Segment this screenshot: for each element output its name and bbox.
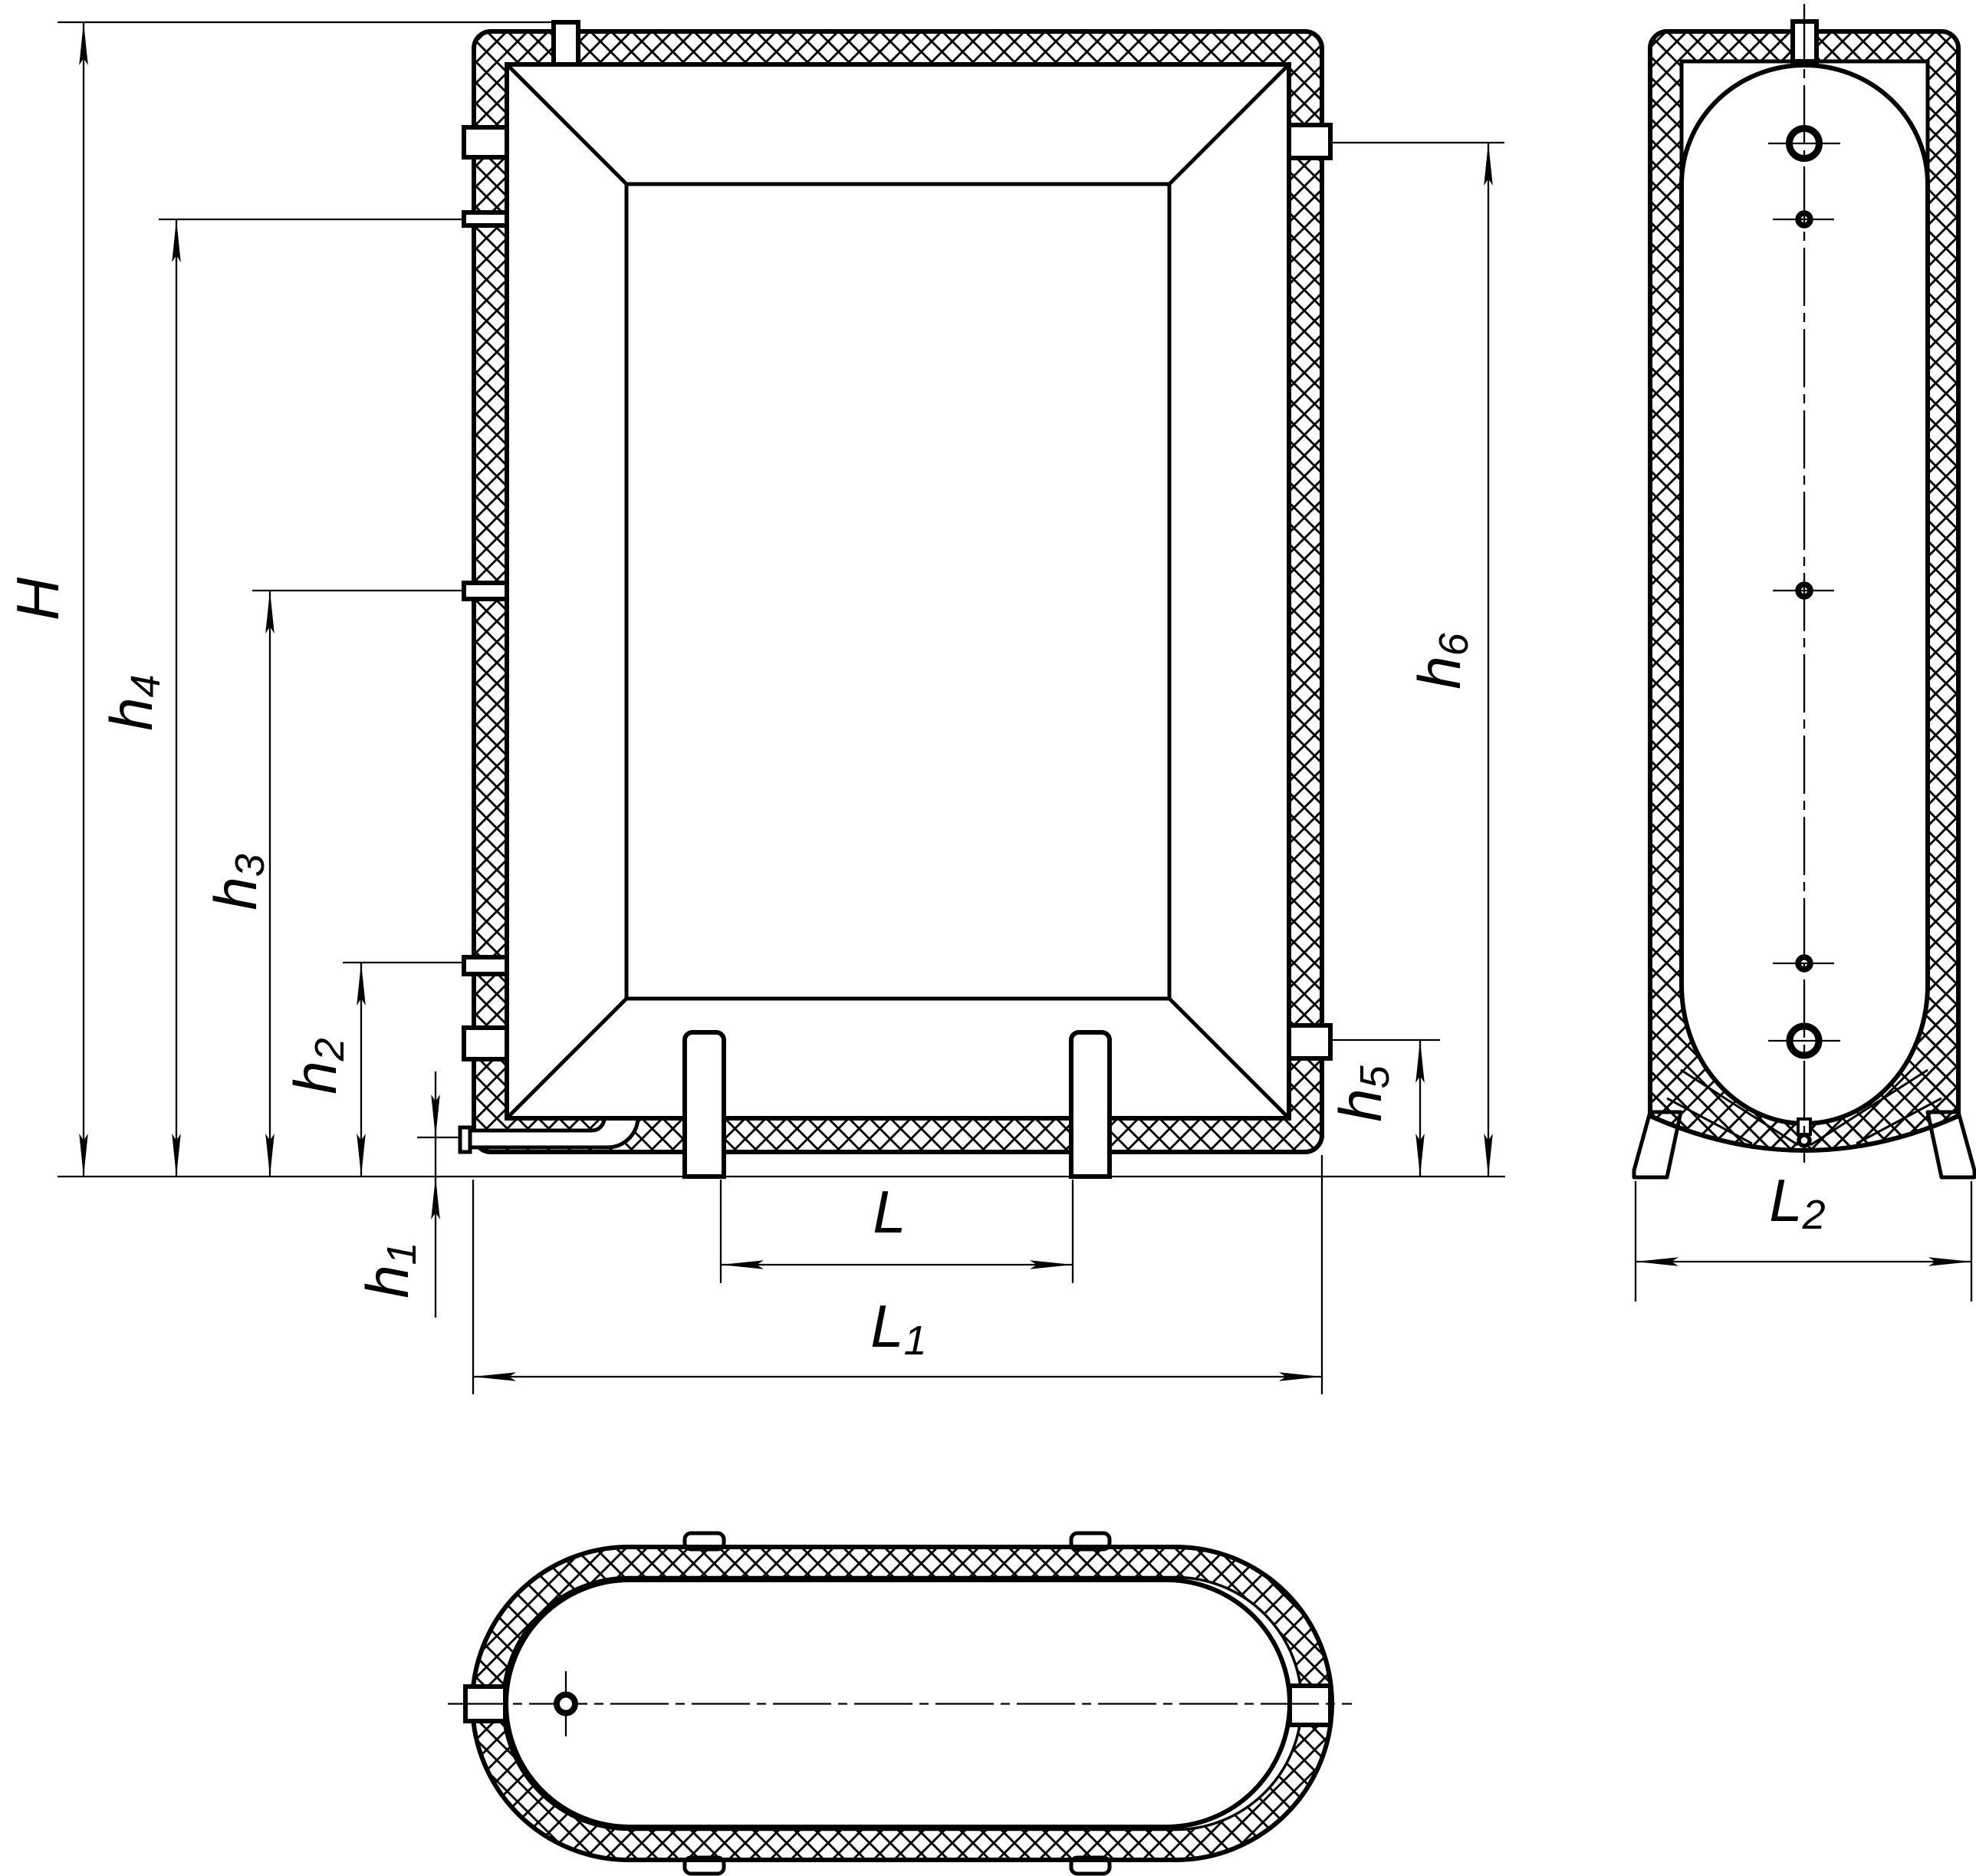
- svg-text:L: L: [873, 1178, 906, 1246]
- svg-text:H: H: [4, 577, 71, 620]
